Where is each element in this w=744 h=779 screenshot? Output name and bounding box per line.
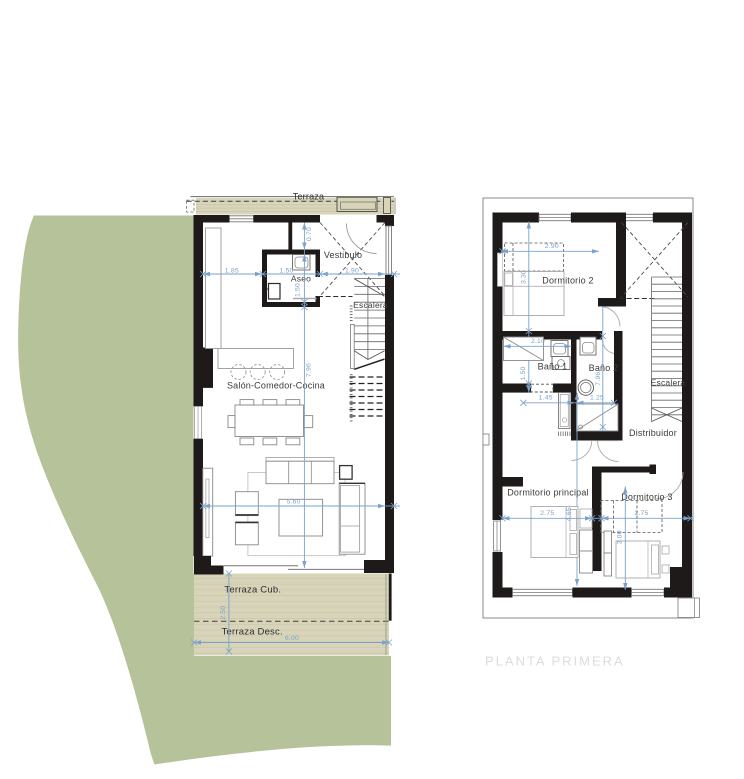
svg-text:2.10: 2.10 [531,338,545,345]
svg-text:6.00: 6.00 [285,635,299,642]
svg-text:Baño 1: Baño 1 [538,362,568,372]
svg-text:Aseo: Aseo [291,274,311,284]
svg-text:Dormitorio principal: Dormitorio principal [507,488,589,498]
svg-text:1.85: 1.85 [225,267,239,274]
svg-text:Escalera: Escalera [353,300,388,310]
svg-text:7.96: 7.96 [595,372,602,386]
svg-text:Dormitorio 2: Dormitorio 2 [542,276,593,286]
svg-text:2.75: 2.75 [540,510,554,517]
svg-text:1.50: 1.50 [279,267,293,274]
svg-text:Salón-Comedor-Cocina: Salón-Comedor-Cocina [227,381,325,391]
svg-text:0.70: 0.70 [306,227,313,241]
svg-text:2.75: 2.75 [634,510,648,517]
svg-text:3.00: 3.00 [617,530,624,544]
svg-text:1.25: 1.25 [590,395,604,402]
svg-text:7.96: 7.96 [306,363,313,377]
svg-text:Distribuidor: Distribuidor [629,428,677,438]
svg-text:Escalera: Escalera [651,378,686,388]
svg-text:2.90: 2.90 [545,243,559,250]
svg-text:1.45: 1.45 [539,395,553,402]
svg-text:1.50: 1.50 [295,283,302,297]
svg-text:Terraza Desc.: Terraza Desc. [222,627,283,638]
svg-text:Terraza Cub.: Terraza Cub. [224,585,281,596]
svg-text:1.50: 1.50 [520,366,527,380]
svg-text:Baño 2: Baño 2 [589,363,619,373]
svg-text:3.30: 3.30 [521,270,528,284]
svg-text:Dormitorio 3: Dormitorio 3 [621,492,672,502]
svg-text:Terraza: Terraza [293,192,324,202]
svg-text:2.50: 2.50 [220,606,227,620]
svg-text:PLANTA PRIMERA: PLANTA PRIMERA [485,654,625,669]
svg-text:1.90: 1.90 [345,267,359,274]
svg-text:5.60: 5.60 [287,499,301,506]
svg-text:4.65: 4.65 [566,507,573,521]
svg-text:Vestibulo: Vestibulo [324,250,362,260]
